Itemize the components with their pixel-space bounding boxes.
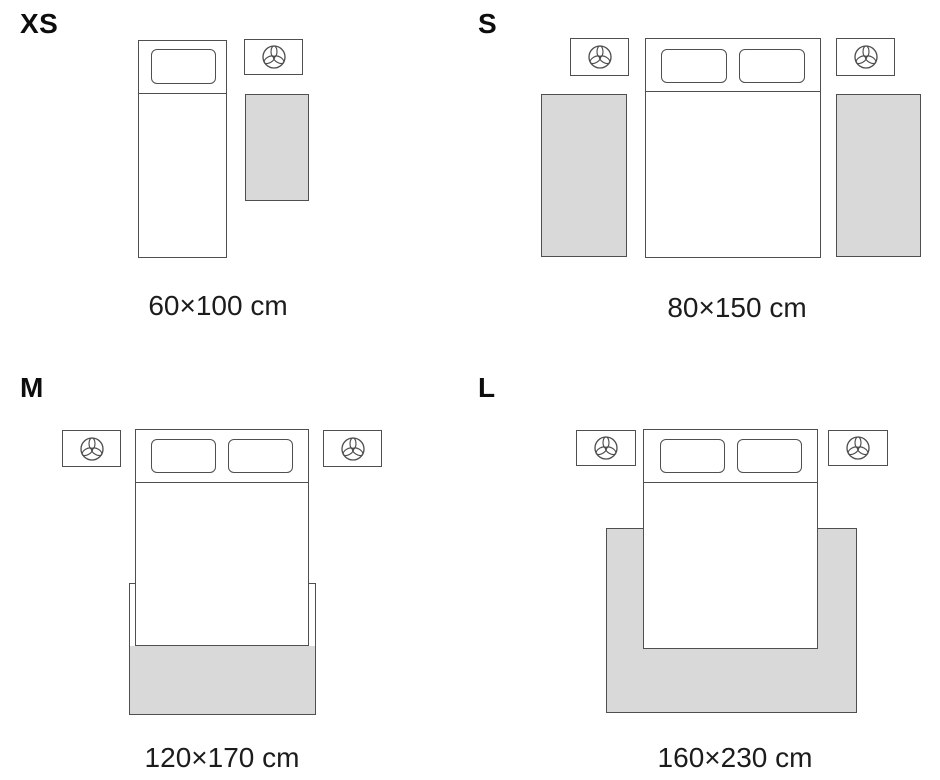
size-caption-m: 120×170 cm	[122, 742, 322, 774]
size-caption-xs: 60×100 cm	[118, 290, 318, 322]
headboard-divider	[644, 482, 817, 483]
plant-icon	[851, 42, 881, 72]
nightstand-m-right	[323, 430, 382, 467]
headboard-divider	[136, 482, 308, 483]
double-bed-s	[645, 38, 821, 258]
nightstand-l-left	[576, 430, 636, 466]
size-label-m: M	[20, 372, 44, 404]
single-bed-xs	[138, 40, 227, 258]
nightstand-xs	[244, 39, 303, 75]
nightstand-m-left	[62, 430, 121, 467]
double-bed-m	[135, 429, 309, 646]
nightstand-s-right	[836, 38, 895, 76]
pillow	[151, 49, 216, 84]
pillow-right	[737, 439, 802, 473]
size-label-l: L	[478, 372, 496, 404]
nightstand-s-left	[570, 38, 629, 76]
rug-m-visible-area	[130, 646, 315, 714]
size-label-s: S	[478, 8, 497, 40]
plant-icon	[77, 434, 107, 464]
plant-icon	[585, 42, 615, 72]
plant-icon	[338, 434, 368, 464]
plant-icon	[591, 433, 621, 463]
pillow-right	[739, 49, 805, 83]
pillow-right	[228, 439, 293, 473]
size-caption-s: 80×150 cm	[637, 292, 837, 324]
double-bed-l	[643, 429, 818, 649]
headboard-divider	[139, 93, 226, 94]
rug-s-right	[836, 94, 921, 257]
rug-xs	[245, 94, 309, 201]
pillow-left	[660, 439, 725, 473]
rug-s-left	[541, 94, 627, 257]
headboard-divider	[646, 91, 820, 92]
plant-icon	[259, 42, 289, 72]
nightstand-l-right	[828, 430, 888, 466]
pillow-left	[151, 439, 216, 473]
size-caption-l: 160×230 cm	[635, 742, 835, 774]
pillow-left	[661, 49, 727, 83]
plant-icon	[843, 433, 873, 463]
rug-size-guide: XS 60×100 cm S	[0, 0, 940, 780]
size-label-xs: XS	[20, 8, 58, 40]
